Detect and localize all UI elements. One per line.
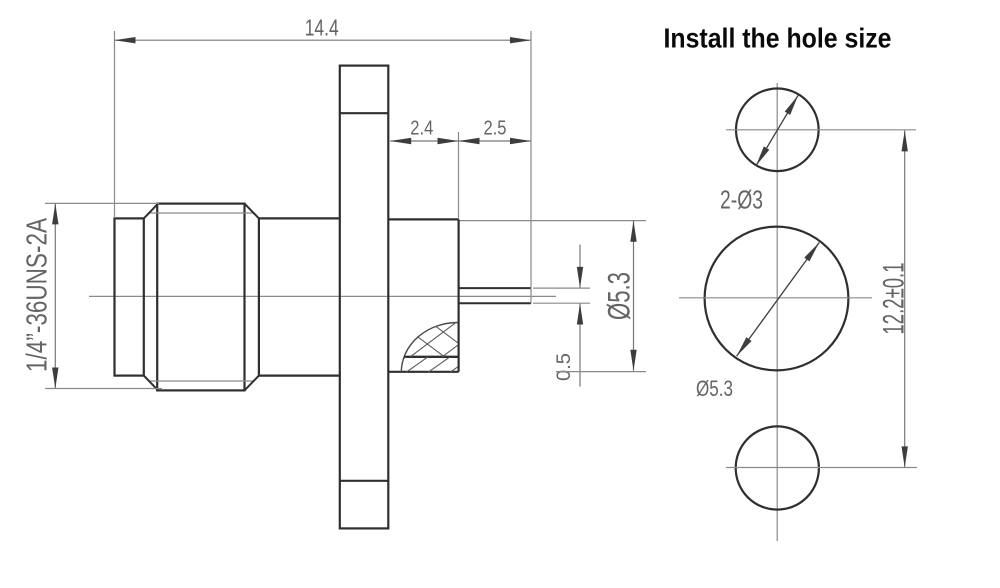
svg-text:1/4”-36UNS-2A: 1/4”-36UNS-2A [22,218,54,372]
svg-text:Ø5.3: Ø5.3 [696,376,733,401]
svg-text:2.4: 2.4 [410,118,433,140]
svg-text:12.2±0.1: 12.2±0.1 [878,263,911,335]
svg-text:14.4: 14.4 [305,15,339,41]
svg-text:Ø5.3: Ø5.3 [601,272,637,320]
svg-text:0.5: 0.5 [554,353,575,381]
svg-text:2-Ø3: 2-Ø3 [720,185,763,215]
svg-text:Install the hole size: Install the hole size [664,23,892,54]
svg-text:2.5: 2.5 [484,118,507,140]
